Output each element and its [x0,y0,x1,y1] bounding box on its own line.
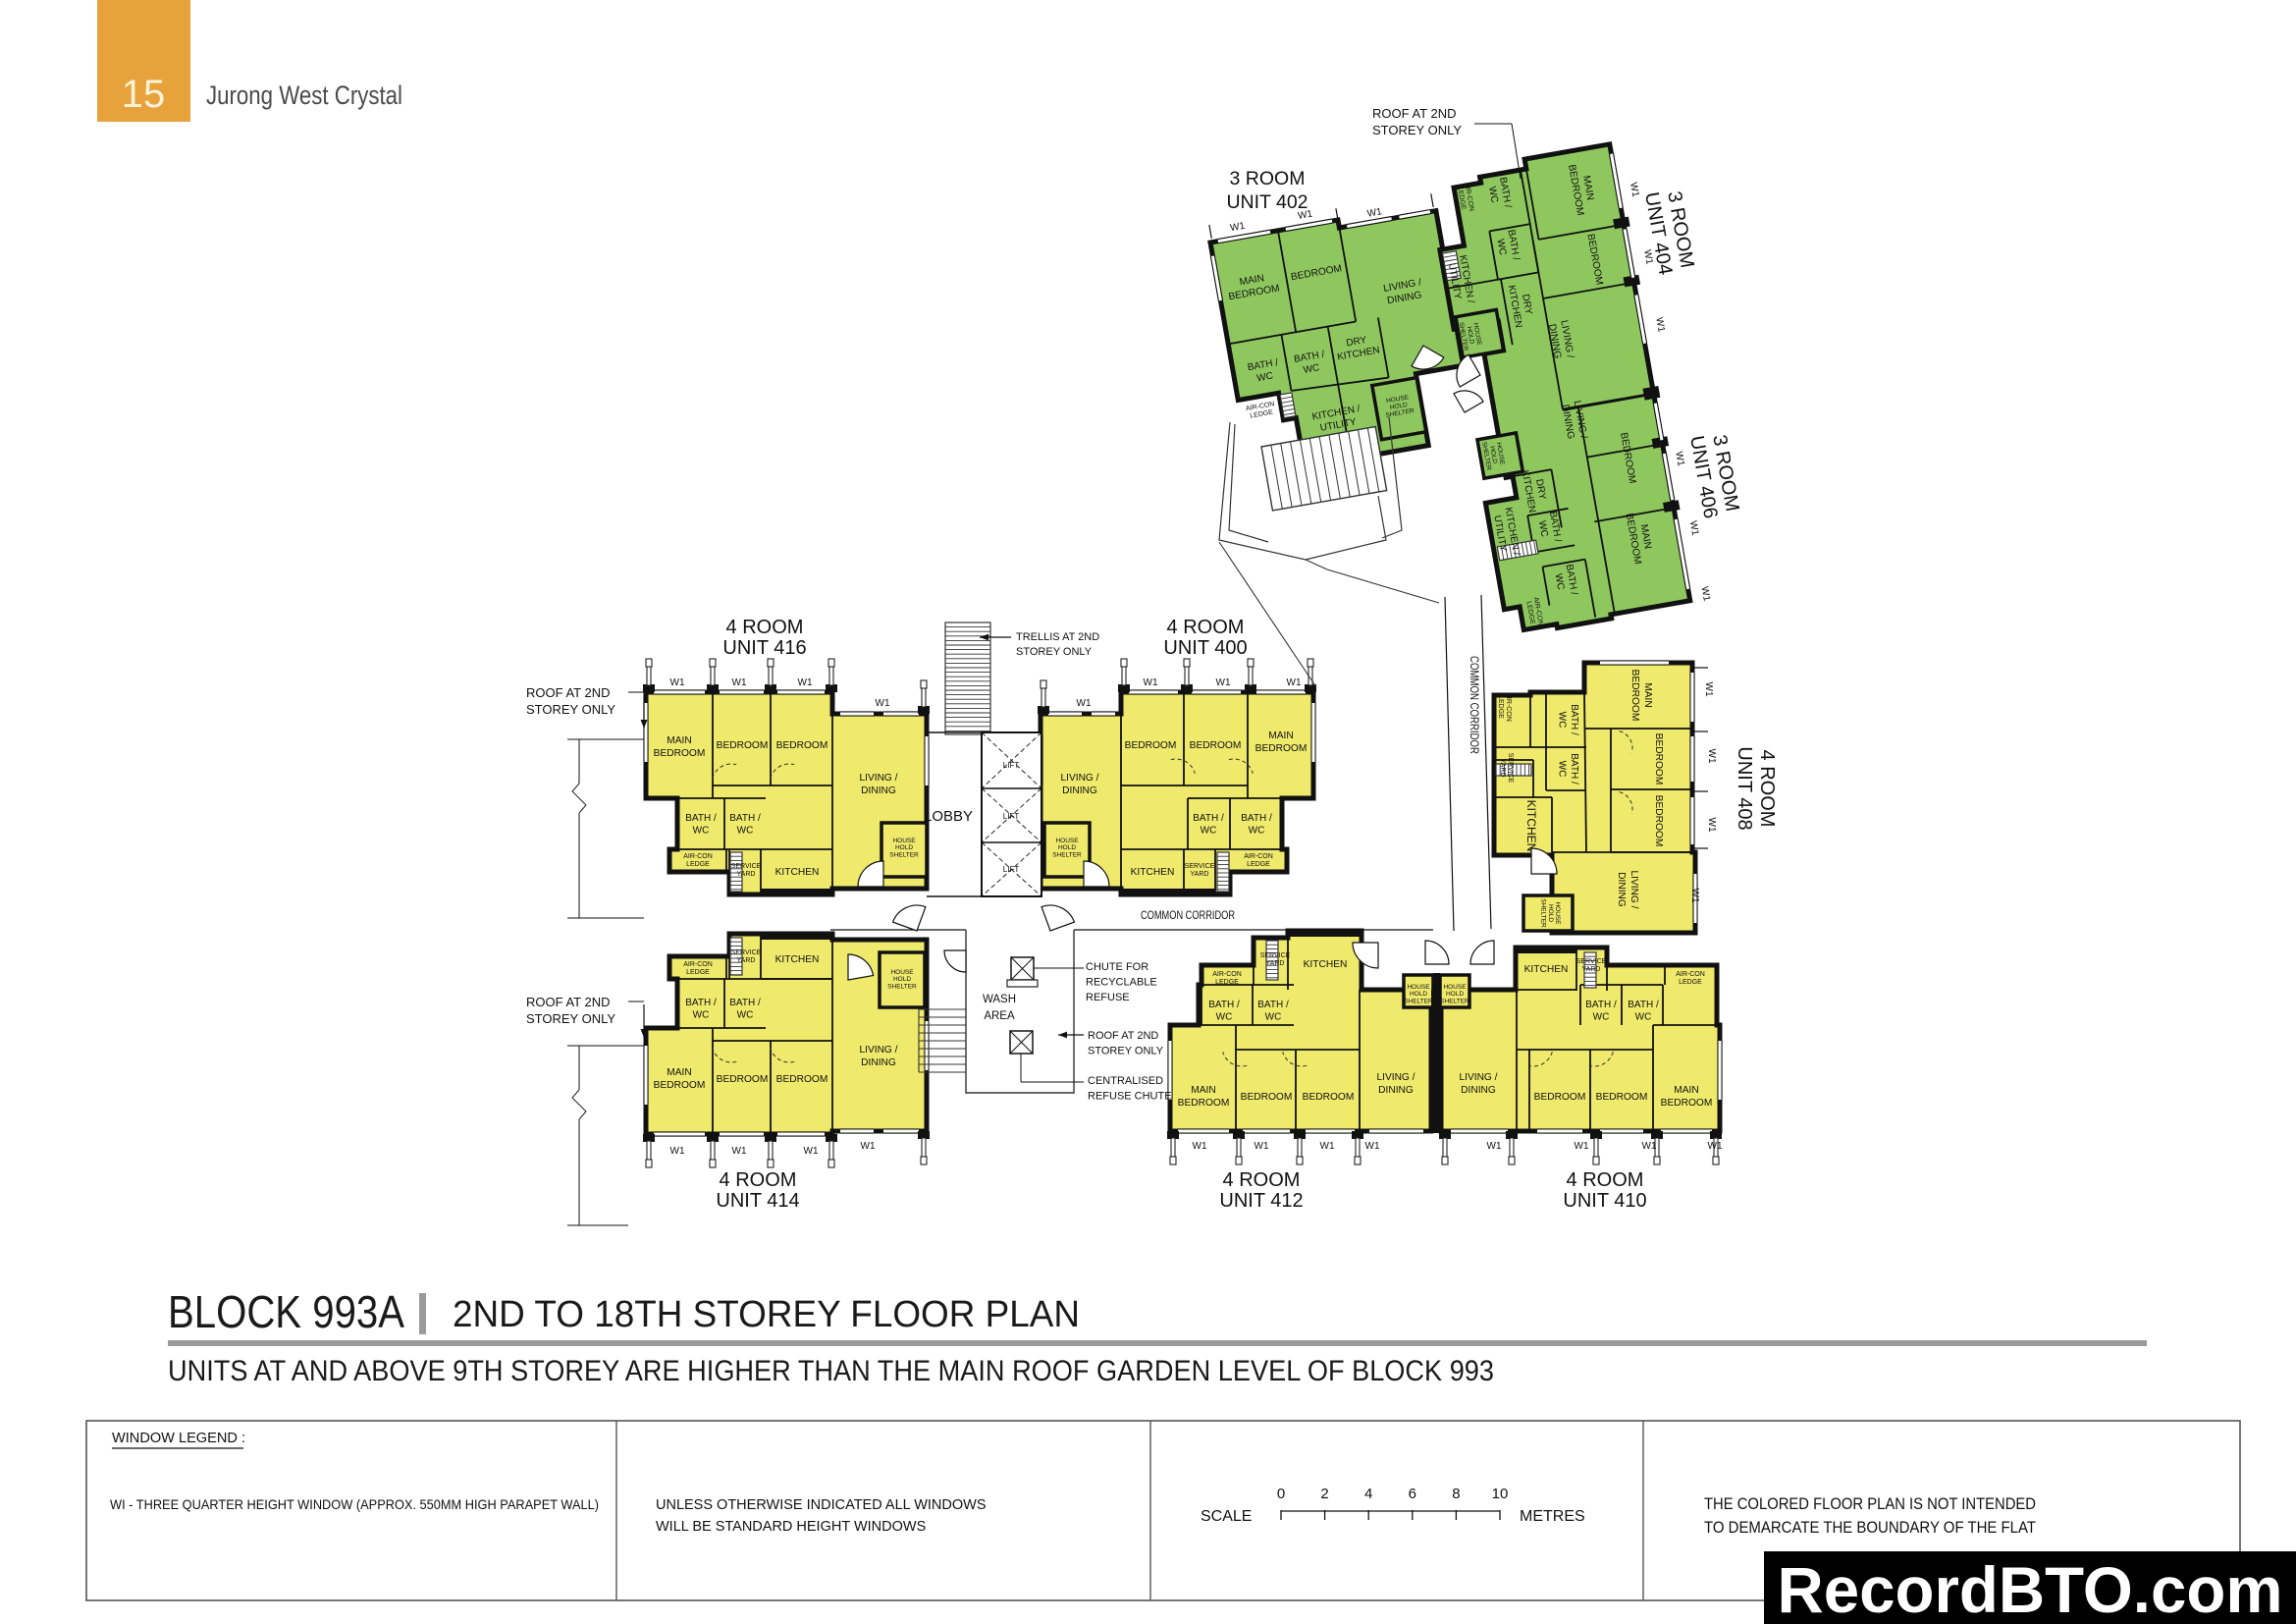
svg-text:W1: W1 [861,1141,876,1152]
svg-text:8: 8 [1452,1486,1460,1502]
svg-text:BEDROOM: BEDROOM [776,740,828,751]
svg-text:RecordBTO.com: RecordBTO.com [1778,1553,2283,1624]
svg-text:BEDROOM: BEDROOM [717,1074,769,1085]
svg-text:LIVING /DINING: LIVING /DINING [1459,1072,1497,1096]
svg-text:W1: W1 [1706,749,1717,764]
svg-text:Jurong West Crystal: Jurong West Crystal [206,81,402,110]
svg-text:LIFT: LIFT [1003,865,1020,874]
svg-text:METRES: METRES [1520,1508,1585,1525]
svg-text:AIR-CONLEDGE: AIR-CONLEDGE [683,853,713,868]
svg-text:4 ROOMUNIT 408: 4 ROOMUNIT 408 [1734,746,1778,830]
svg-text:LOBBY: LOBBY [924,808,973,825]
svg-text:4 ROOMUNIT 414: 4 ROOMUNIT 414 [716,1169,799,1212]
svg-text:WINDOW LEGEND :: WINDOW LEGEND : [112,1430,245,1446]
svg-text:4 ROOMUNIT 416: 4 ROOMUNIT 416 [722,617,806,659]
svg-text:W1: W1 [1706,818,1717,833]
svg-text:W1: W1 [732,677,747,688]
svg-text:LIVING /DINING: LIVING /DINING [859,773,897,796]
svg-text:BEDROOM: BEDROOM [1241,1092,1293,1103]
svg-text:COMMON CORRIDOR: COMMON CORRIDOR [1141,908,1235,922]
svg-text:6: 6 [1409,1486,1416,1502]
svg-text:SCALE: SCALE [1201,1508,1252,1525]
svg-text:W1: W1 [1077,698,1092,709]
svg-text:W1: W1 [1193,1141,1207,1152]
svg-text:W1: W1 [1216,677,1231,688]
svg-text:W1: W1 [876,698,890,709]
svg-text:W1: W1 [1365,1141,1380,1152]
svg-text:2ND TO 18TH STOREY FLOOR PLAN: 2ND TO 18TH STOREY FLOOR PLAN [453,1294,1080,1335]
svg-text:W1: W1 [732,1146,747,1157]
svg-text:BEDROOM: BEDROOM [1534,1092,1586,1103]
svg-text:KITCHEN: KITCHEN [1131,867,1175,878]
svg-text:2: 2 [1320,1486,1328,1502]
svg-text:W1: W1 [1287,677,1302,688]
svg-text:BEDROOM: BEDROOM [1303,1092,1355,1103]
svg-text:W1: W1 [670,1146,685,1157]
svg-text:COMMON CORRIDOR: COMMON CORRIDOR [1468,656,1479,754]
svg-text:4: 4 [1364,1486,1372,1502]
svg-text:W1: W1 [1487,1141,1502,1152]
svg-text:BEDROOM: BEDROOM [1596,1092,1648,1103]
svg-text:W1: W1 [804,1146,819,1157]
svg-text:WI - THREE QUARTER HEIGHT WIND: WI - THREE QUARTER HEIGHT WINDOW (APPROX… [110,1496,599,1512]
svg-text:W1: W1 [1689,889,1700,903]
svg-text:KITCHEN: KITCHEN [1524,800,1538,852]
svg-text:W1: W1 [1144,677,1158,688]
svg-text:LIFT: LIFT [1003,761,1020,770]
svg-text:BEDROOM: BEDROOM [1653,733,1664,785]
svg-text:AIR-CONLEDGE: AIR-CONLEDGE [1212,971,1242,986]
svg-text:BEDROOM: BEDROOM [717,740,769,751]
svg-text:W1: W1 [670,677,685,688]
svg-text:10: 10 [1492,1486,1509,1502]
svg-text:W1: W1 [1575,1141,1589,1152]
svg-text:BLOCK 993A: BLOCK 993A [168,1286,404,1337]
svg-text:BEDROOM: BEDROOM [1125,740,1177,751]
svg-text:AIR-CONLEDGE: AIR-CONLEDGE [1244,853,1273,868]
svg-text:W1: W1 [1642,1141,1657,1152]
svg-text:KITCHEN: KITCHEN [1304,959,1348,970]
svg-text:KITCHEN: KITCHEN [1524,964,1569,975]
svg-text:0: 0 [1277,1486,1285,1502]
svg-text:KITCHEN: KITCHEN [775,867,820,878]
svg-text:BEDROOM: BEDROOM [776,1074,828,1085]
svg-text:4 ROOMUNIT 412: 4 ROOMUNIT 412 [1219,1169,1303,1212]
svg-text:4 ROOMUNIT 400: 4 ROOMUNIT 400 [1163,617,1247,659]
svg-text:W1: W1 [1255,1141,1269,1152]
svg-text:4 ROOMUNIT 410: 4 ROOMUNIT 410 [1563,1169,1646,1212]
svg-text:W1: W1 [1703,682,1714,697]
svg-text:AIR-CONLEDGE: AIR-CONLEDGE [1676,971,1705,986]
svg-text:BEDROOM: BEDROOM [1190,740,1242,751]
svg-text:W1: W1 [1320,1141,1335,1152]
svg-text:AIR-CONLEDGE: AIR-CONLEDGE [1497,692,1512,722]
svg-text:BEDROOM: BEDROOM [1653,795,1664,847]
svg-text:W1: W1 [798,677,813,688]
svg-text:LIVING /DINING: LIVING /DINING [1616,870,1639,908]
svg-text:AIR-CONLEDGE: AIR-CONLEDGE [683,961,713,976]
svg-text:W1: W1 [1708,1141,1723,1152]
svg-text:LIFT: LIFT [1003,812,1020,821]
svg-text:15: 15 [122,73,166,116]
svg-text:LIVING /DINING: LIVING /DINING [1376,1072,1415,1096]
svg-text:KITCHEN: KITCHEN [775,954,820,965]
svg-text:UNITS AT AND ABOVE 9TH STOREY: UNITS AT AND ABOVE 9TH STOREY ARE HIGHER… [168,1355,1494,1387]
svg-text:LIVING /DINING: LIVING /DINING [1060,773,1098,796]
svg-text:LIVING /DINING: LIVING /DINING [859,1045,897,1068]
